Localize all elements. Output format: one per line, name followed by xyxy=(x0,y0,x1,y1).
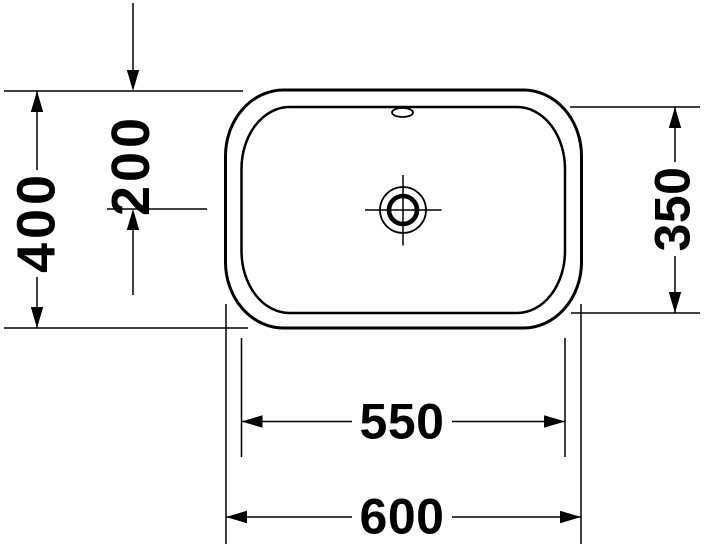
dim-overall-width-label: 600 xyxy=(360,489,445,545)
drain-symbol xyxy=(365,175,442,246)
dim-basin-width: 550 xyxy=(242,338,566,457)
dim-basin-depth-label: 350 xyxy=(645,167,701,252)
technical-drawing: 400 200 350 550 600 xyxy=(0,0,705,547)
dim-drain-offset-label: 200 xyxy=(101,114,161,216)
overflow-hole-icon xyxy=(392,108,413,117)
dim-drain-offset: 200 xyxy=(101,3,207,295)
dim-overall-depth-label: 400 xyxy=(6,171,66,273)
dim-basin-depth: 350 xyxy=(570,107,701,313)
drawing-canvas: 400 200 350 550 600 xyxy=(0,0,705,547)
dim-basin-width-label: 550 xyxy=(360,394,445,450)
